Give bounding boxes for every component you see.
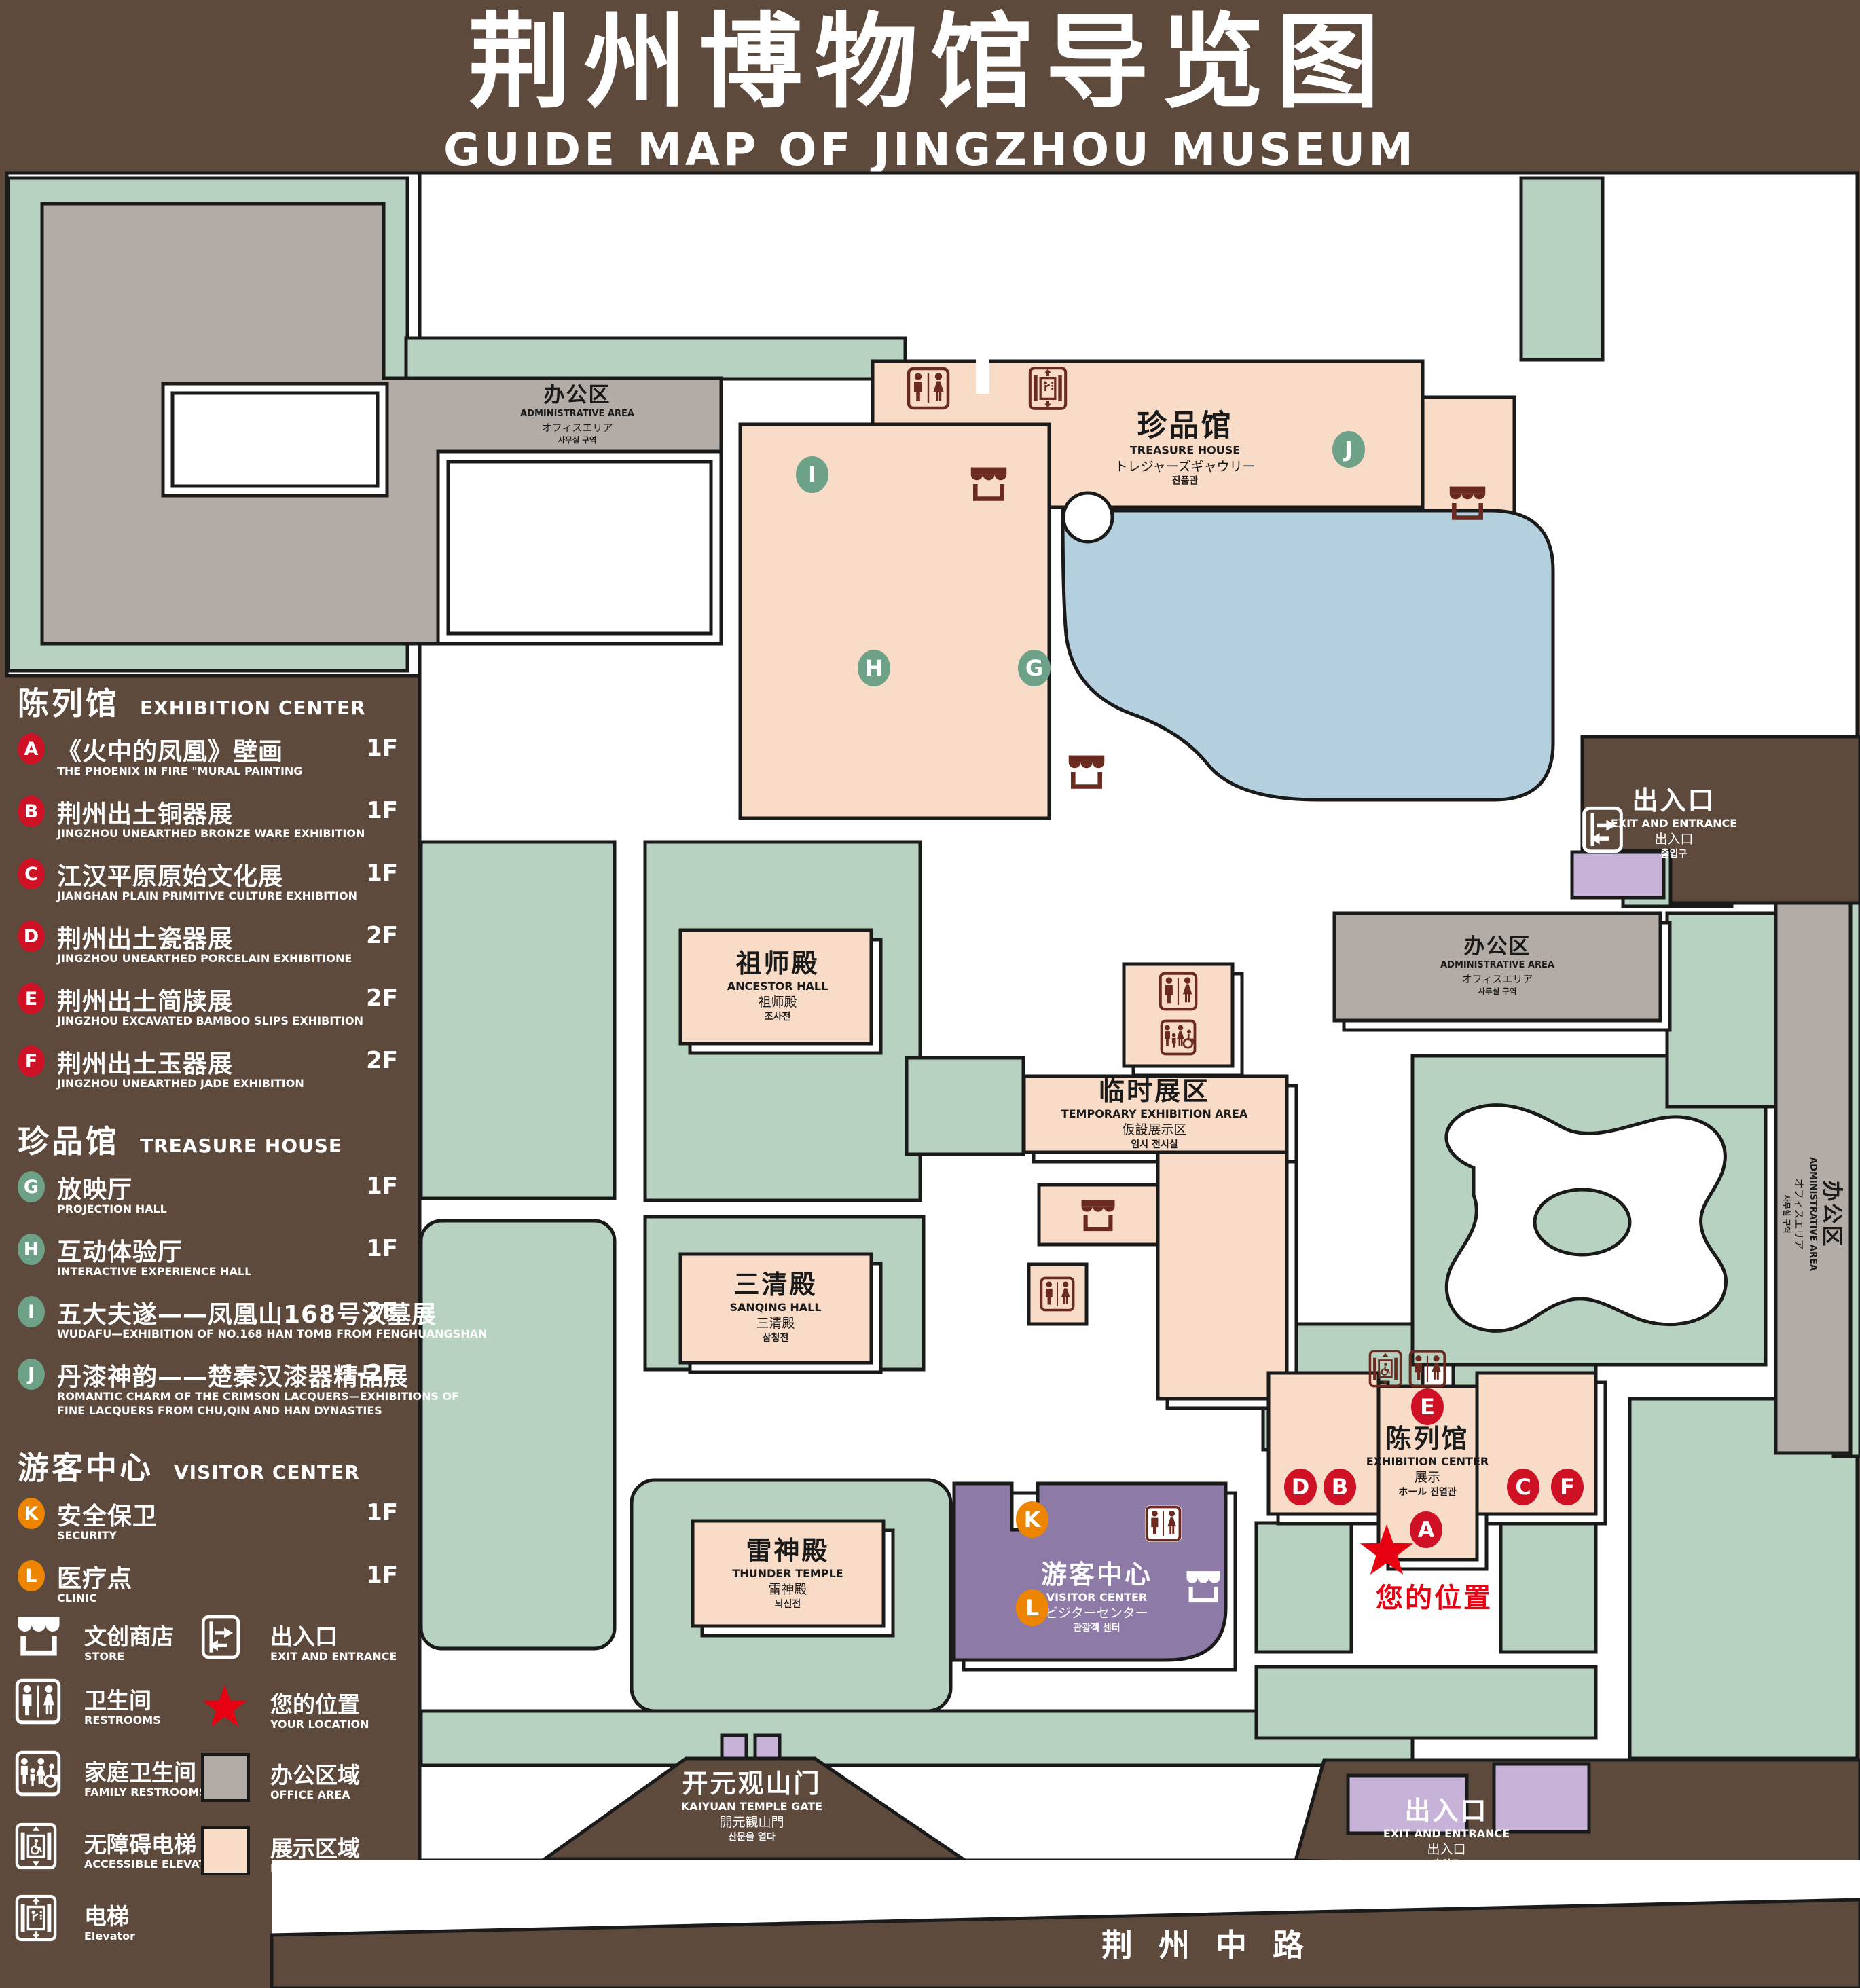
map-marker-K: K <box>1016 1501 1048 1538</box>
legend-item-floor: 1F <box>366 1235 398 1262</box>
legend-display-area: 展示区域 DISPLAY AREA <box>201 1826 391 1894</box>
legend-item-E: E荆州出土简牍展2FJINGZHOU EXCAVATED BAMBOO SLIP… <box>18 982 398 1044</box>
legend-item-floor: 1F <box>366 797 398 824</box>
display-area-swatch <box>201 1826 250 1875</box>
legend-item-L: L医疗点1FCLINIC <box>18 1559 398 1621</box>
road-label: 荆州中路 <box>1101 1921 1330 1966</box>
label-sanqing-hall: 三清殿 SANQING HALL 三清殿 삼청전 <box>729 1270 821 1344</box>
legend-item-en: PROJECTION HALL <box>57 1202 478 1217</box>
label-visitor-center: 游客中心 VISITOR CENTER ビジターセンター 관광객 센터 <box>1041 1560 1152 1634</box>
legend-item-zh: 互动体验厅 <box>57 1232 183 1268</box>
store-icon <box>968 466 1009 502</box>
legend-office-area: 办公区域 OFFICE AREA <box>201 1753 391 1821</box>
legend-item-en: ROMANTIC CHARM OF THE CRIMSON LACQUERS—E… <box>57 1390 464 1418</box>
map-marker-G: G <box>1018 650 1051 686</box>
legend-item-floor: 1F <box>366 1499 398 1526</box>
legend-item-en: JINGZHOU UNEARTHED PORCELAIN EXHIBITIONE <box>57 952 478 966</box>
store-icon <box>15 1615 62 1656</box>
legend-store: 文创商店 STORE <box>15 1615 205 1682</box>
legend-section-title-en: TREASURE HOUSE <box>140 1135 342 1157</box>
legend-badge-L: L <box>18 1560 45 1591</box>
legend-your-location: 您的位置 YOUR LOCATION <box>201 1682 391 1750</box>
legend-item-floor: 1F <box>366 735 398 762</box>
label-kaiyuan-gate: 开元观山门 KAIYUAN TEMPLE GATE 開元観山門 산문을 열다 <box>681 1769 822 1843</box>
map-marker-B: B <box>1324 1469 1356 1505</box>
legend-item-en: JINGZHOU EXCAVATED BAMBOO SLIPS EXHIBITI… <box>57 1014 478 1029</box>
legend-badge-K: K <box>18 1498 45 1529</box>
legend-item-en: JINGZHOU UNEARTHED BRONZE WARE EXHIBITIO… <box>57 827 478 841</box>
legend-item-H: H互动体验厅1FINTERACTIVE EXPERIENCE HALL <box>18 1232 398 1295</box>
legend-item-en: INTERACTIVE EXPERIENCE HALL <box>57 1265 478 1279</box>
legend-item-en: JINGZHOU UNEARTHED JADE EXHIBITION <box>57 1077 478 1091</box>
legend-badge-B: B <box>18 796 45 827</box>
legend-item-zh: 荆州出土简牍展 <box>57 982 233 1017</box>
restrooms-icon <box>1159 972 1198 1011</box>
legend-badge-E: E <box>18 983 45 1014</box>
map-marker-A: A <box>1410 1511 1442 1548</box>
legend-item-K: K安全保卫1FSECURITY <box>18 1496 398 1559</box>
label-ancestor-hall: 祖师殿 ANCESTOR HALL 祖师殿 조사전 <box>727 949 828 1023</box>
office-area-swatch <box>201 1753 250 1802</box>
legend-item-floor: 1-2F <box>340 1360 398 1387</box>
legend-family-restrooms: 家庭卫生间 FAMILY RESTROOMS <box>15 1750 205 1818</box>
legend-item-zh: 医疗点 <box>57 1559 132 1594</box>
legend-item-A: A《火中的凤凰》壁画1FTHE PHOENIX IN FIRE "MURAL P… <box>18 732 398 794</box>
legend-exit: 出入口 EXIT AND ENTRANCE <box>201 1615 391 1682</box>
your-location-star-icon <box>1358 1522 1415 1579</box>
store-icon <box>1066 754 1107 790</box>
legend-item-floor: 1F <box>366 860 398 887</box>
legend-item-floor: 2F <box>366 922 398 949</box>
store-icon <box>1184 1570 1222 1603</box>
label-temporary-exhibition: 临时展区 TEMPORARY EXHIBITION AREA 仮設展示区 임시 … <box>1061 1077 1248 1150</box>
label-exit-south: 出入口 EXIT AND ENTRANCE 出入口 출입구 <box>1383 1797 1510 1870</box>
legend-badge-J: J <box>18 1359 45 1390</box>
store-icon <box>1447 485 1488 521</box>
legend-item-D: D荆州出土瓷器展2FJINGZHOU UNEARTHED PORCELAIN E… <box>18 919 398 982</box>
your-location-star-icon <box>201 1682 249 1730</box>
legend-item-floor: 2F <box>366 1047 398 1074</box>
legend-section-2: 游客中心VISITOR CENTERK安全保卫1FSECURITYL医疗点1FC… <box>18 1443 459 1621</box>
legend-badge-G: G <box>18 1171 45 1202</box>
map-marker-E: E <box>1411 1388 1444 1425</box>
label-admin-fareast: 办公区 ADMINISTRATIVE AREA オフィスエリア 사무실 구역 <box>1782 1157 1843 1271</box>
map-marker-F: F <box>1551 1469 1584 1505</box>
restrooms-icon <box>907 367 950 410</box>
accessible-elevator-icon <box>15 1822 57 1870</box>
legend-section-title-en: EXHIBITION CENTER <box>140 697 366 719</box>
legend-item-zh: 荆州出土玉器展 <box>57 1044 233 1080</box>
legend-badge-D: D <box>18 921 45 952</box>
exit-icon <box>201 1615 240 1659</box>
family-restrooms-icon <box>15 1750 61 1797</box>
label-exhibition-center: 陈列馆 EXHIBITION CENTER 展示 ホール 진열관 <box>1366 1424 1489 1498</box>
legend-item-zh: 荆州出土瓷器展 <box>57 919 233 955</box>
legend-item-zh: 安全保卫 <box>57 1496 158 1532</box>
legend-badge-I: I <box>18 1296 45 1327</box>
map-marker-H: H <box>858 650 890 686</box>
legend-item-en: CLINIC <box>57 1591 478 1606</box>
legend-item-en: SECURITY <box>57 1529 478 1543</box>
store-icon <box>1079 1198 1117 1232</box>
map-marker-I: I <box>796 456 828 493</box>
label-exit-northeast: 出入口 EXIT AND ENTRANCE 出入口 출입구 <box>1611 786 1737 860</box>
accessible-elevator-icon <box>1368 1350 1402 1388</box>
legend-item-en: JIANGHAN PLAIN PRIMITIVE CULTURE EXHIBIT… <box>57 889 478 904</box>
legend-item-en: THE PHOENIX IN FIRE "MURAL PAINTING <box>57 765 478 779</box>
legend-section-title-zh: 陈列馆 <box>18 679 120 724</box>
legend-section-0: 陈列馆EXHIBITION CENTERA《火中的凤凰》壁画1FTHE PHOE… <box>18 679 459 1107</box>
legend-item-C: C江汉平原原始文化展1FJIANGHAN PLAIN PRIMITIVE CUL… <box>18 857 398 919</box>
label-treasure-house: 珍品馆 TREASURE HOUSE トレジャーズギャウリー 진품관 <box>1114 409 1255 487</box>
legend-item-F: F荆州出土玉器展2FJINGZHOU UNEARTHED JADE EXHIBI… <box>18 1044 398 1107</box>
your-location-label: 您的位置 <box>1376 1576 1493 1615</box>
legend-section-title-zh: 游客中心 <box>18 1443 153 1488</box>
legend-item-floor: 2F <box>366 984 398 1012</box>
legend-accessible-elevator: 无障碍电梯 ACCESSIBLE ELEVATOR <box>15 1822 205 1890</box>
legend-section-header: 陈列馆EXHIBITION CENTER <box>18 679 459 732</box>
legend-item-floor: 1F <box>366 1173 398 1200</box>
legend-section-title-en: VISITOR CENTER <box>174 1461 360 1484</box>
legend-badge-F: F <box>18 1046 45 1077</box>
elevator-icon <box>15 1894 57 1942</box>
legend-item-I: I五大夫遂——凤凰山168号汉墓展2FWUDAFU—EXHIBITION OF … <box>18 1295 398 1357</box>
legend-elevator: 电梯 Elevator <box>15 1894 205 1962</box>
restrooms-icon <box>15 1678 61 1725</box>
legend-badge-A: A <box>18 733 45 765</box>
legend-item-B: B荆州出土铜器展1FJINGZHOU UNEARTHED BRONZE WARE… <box>18 794 398 857</box>
legend-badge-H: H <box>18 1234 45 1265</box>
legend-restrooms: 卫生间 RESTROOMS <box>15 1678 205 1746</box>
label-admin-east: 办公区 ADMINISTRATIVE AREA オフィスエリア 사무실 구역 <box>1440 935 1554 996</box>
label-thunder-temple: 雷神殿 THUNDER TEMPLE 雷神殿 뇌신전 <box>732 1536 843 1610</box>
restrooms-icon <box>1408 1350 1446 1388</box>
map-marker-D: D <box>1284 1469 1317 1505</box>
legend-item-zh: 放映厅 <box>57 1170 132 1205</box>
label-admin-northwest: 办公区 ADMINISTRATIVE AREA オフィスエリア 사무실 구역 <box>520 384 634 445</box>
exit-icon <box>1582 806 1624 853</box>
legend-item-zh: 《火中的凤凰》壁画 <box>57 732 283 767</box>
restrooms-icon <box>1145 1505 1182 1542</box>
restrooms-icon <box>1040 1276 1075 1312</box>
legend-badge-C: C <box>18 858 45 889</box>
legend-item-G: G放映厅1FPROJECTION HALL <box>18 1170 398 1232</box>
legend-section-header: 珍品馆TREASURE HOUSE <box>18 1117 459 1170</box>
map-marker-C: C <box>1507 1469 1539 1505</box>
legend-section-header: 游客中心VISITOR CENTER <box>18 1443 459 1496</box>
legend-item-floor: 1F <box>366 1562 398 1589</box>
legend-item-floor: 2F <box>366 1297 398 1325</box>
legend-item-zh: 江汉平原原始文化展 <box>57 857 283 892</box>
legend-section-title-zh: 珍品馆 <box>18 1117 120 1162</box>
family-restrooms-icon <box>1160 1019 1197 1056</box>
legend-item-zh: 荆州出土铜器展 <box>57 794 233 830</box>
legend-item-en: WUDAFU—EXHIBITION OF NO.168 HAN TOMB FRO… <box>57 1327 478 1342</box>
map-marker-J: J <box>1332 431 1365 468</box>
map-marker-L: L <box>1016 1589 1048 1626</box>
legend-item-J: J丹漆神韵——楚秦汉漆器精品展1-2FROMANTIC CHARM OF THE… <box>18 1357 398 1444</box>
legend-section-1: 珍品馆TREASURE HOUSEG放映厅1FPROJECTION HALLH互… <box>18 1117 459 1444</box>
elevator-icon <box>1028 367 1068 411</box>
